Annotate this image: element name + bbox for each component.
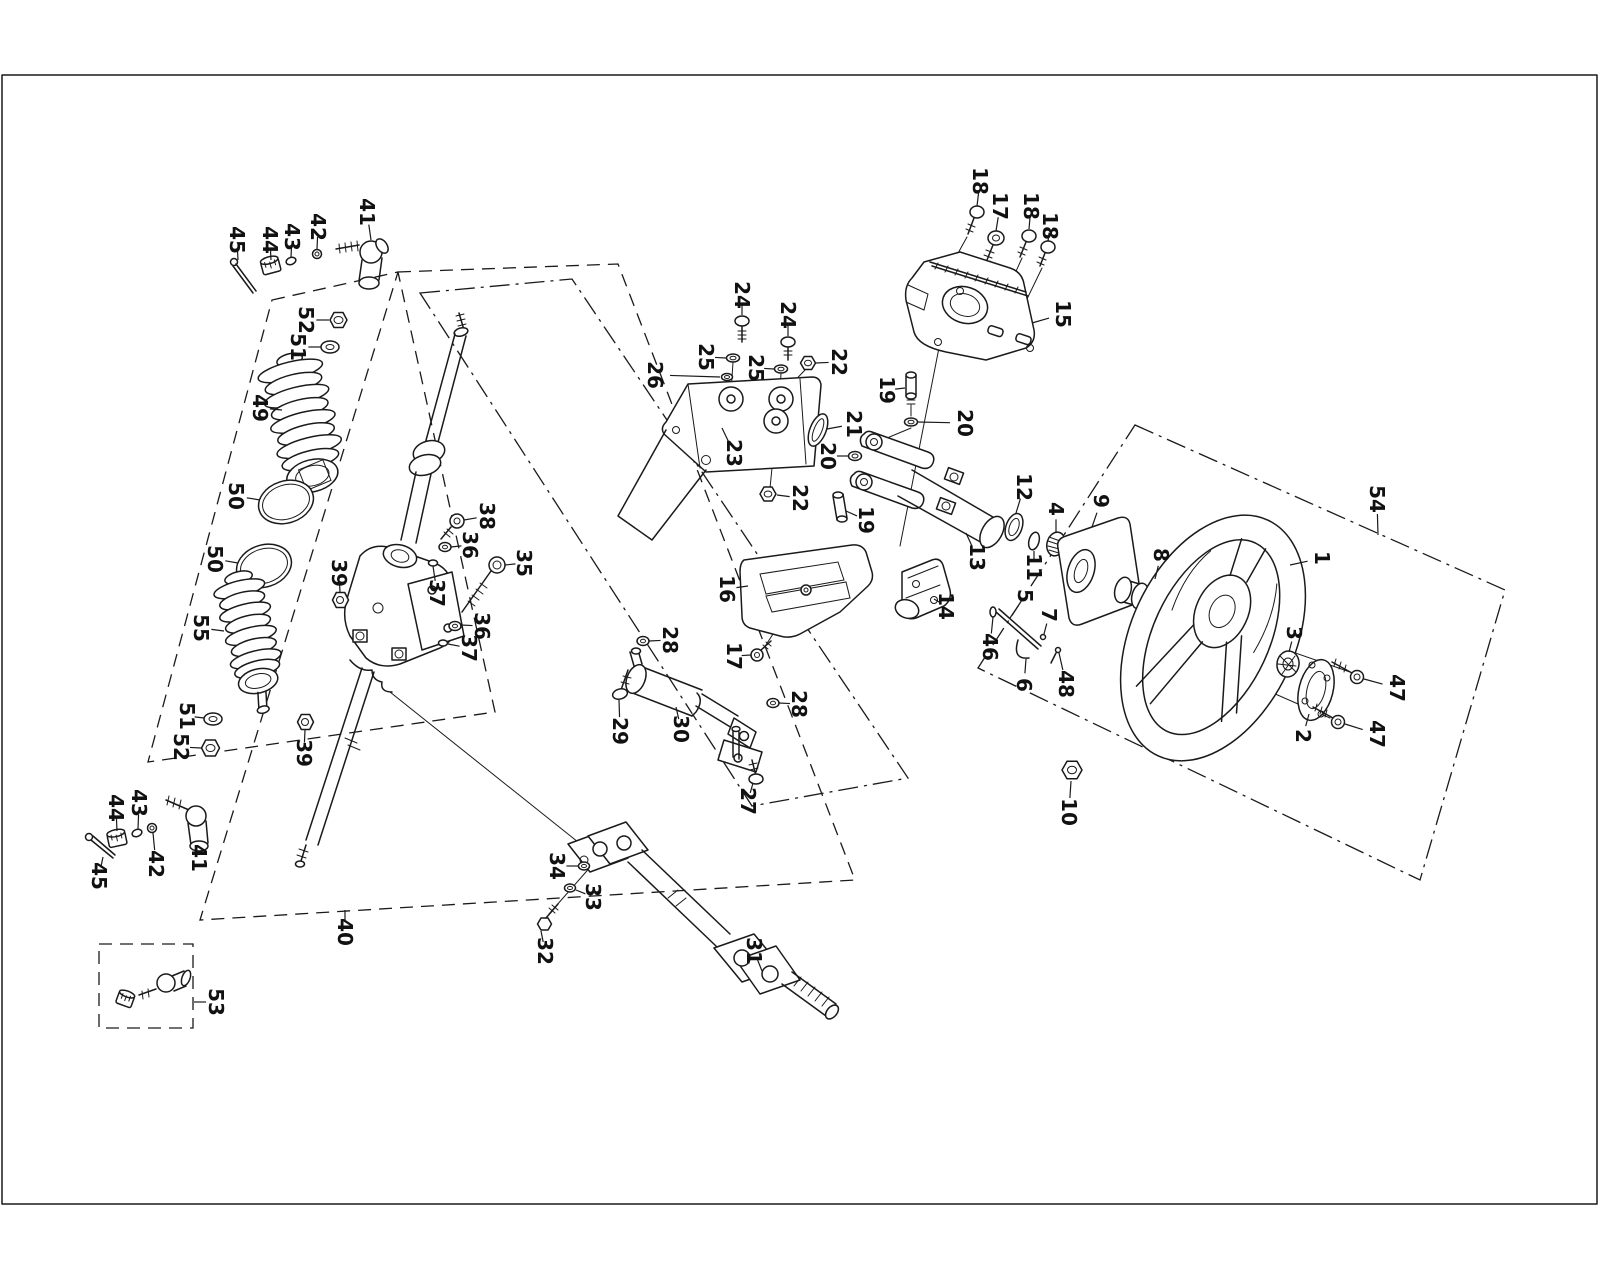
part-label-14: 14 — [934, 592, 958, 620]
guard-plate-16-drawing — [740, 545, 873, 661]
part-label-28: 28 — [787, 690, 811, 718]
part-label-41: 41 — [355, 198, 379, 226]
part-label-53: 53 — [204, 988, 228, 1016]
leader-line-6 — [1025, 659, 1026, 673]
leader-line-41 — [369, 225, 371, 240]
leader-line-5 — [1010, 606, 1018, 618]
rack-jam-nut-washer-lower-drawing — [202, 713, 223, 756]
part-label-36: 36 — [458, 531, 482, 559]
leader-line-38 — [464, 518, 477, 520]
part-label-21: 21 — [842, 410, 866, 438]
part-label-34: 34 — [545, 852, 569, 880]
part-label-47: 47 — [1385, 674, 1409, 702]
leader-line-48 — [1059, 653, 1063, 670]
part-label-4: 4 — [1044, 502, 1068, 516]
leader-line-26 — [670, 375, 720, 377]
part-label-45: 45 — [87, 862, 111, 890]
leader-line-22 — [816, 362, 829, 363]
part-label-2: 2 — [1291, 729, 1315, 743]
part-label-7: 7 — [1037, 608, 1061, 622]
part-label-32: 32 — [533, 937, 557, 965]
part-label-25: 25 — [744, 354, 768, 382]
rack-boot-upper-drawing — [254, 346, 352, 498]
part-label-16: 16 — [715, 575, 739, 603]
part-label-40: 40 — [333, 918, 357, 946]
column-cover-9-drawing — [1058, 517, 1141, 625]
part-label-8: 8 — [1149, 548, 1173, 562]
part-label-55: 55 — [189, 614, 213, 642]
rack-boot-lower-drawing — [209, 566, 295, 718]
part-label-10: 10 — [1057, 798, 1081, 826]
part-label-12: 12 — [1012, 473, 1036, 501]
part-label-51: 51 — [286, 333, 310, 361]
part-label-5: 5 — [1013, 589, 1037, 603]
part-label-18: 18 — [1038, 212, 1062, 240]
part-label-6: 6 — [1012, 678, 1036, 692]
part-label-1: 1 — [1310, 551, 1334, 565]
part-label-20: 20 — [953, 409, 977, 437]
part-label-27: 27 — [736, 787, 760, 815]
part-label-17: 17 — [722, 642, 746, 670]
part-label-42: 42 — [306, 213, 330, 241]
part-label-48: 48 — [1054, 670, 1078, 698]
part-label-15: 15 — [1051, 300, 1075, 328]
leader-line-21 — [827, 426, 842, 429]
part-label-54: 54 — [1365, 485, 1389, 513]
part-label-44: 44 — [104, 794, 128, 822]
leader-line-15 — [1032, 318, 1049, 323]
part-label-39: 39 — [292, 739, 316, 767]
part-label-13: 13 — [965, 543, 989, 571]
part-label-24: 24 — [776, 301, 800, 329]
part-label-46: 46 — [978, 633, 1002, 661]
leader-line-10 — [1070, 781, 1071, 798]
leader-line-7 — [1044, 624, 1047, 634]
part-label-17: 17 — [988, 192, 1012, 220]
part-label-52: 52 — [169, 733, 193, 761]
part-label-45: 45 — [225, 226, 249, 254]
part-label-44: 44 — [258, 226, 282, 254]
part-label-28: 28 — [658, 626, 682, 654]
part-label-37: 37 — [457, 634, 481, 662]
tie-rod-end-upper-drawing — [336, 237, 391, 289]
leader-line-20 — [918, 422, 950, 423]
part-label-22: 22 — [827, 348, 851, 376]
column-bracket-plate-23-drawing — [618, 377, 821, 540]
leader-line-22 — [777, 495, 790, 497]
parts-diagram-page: 1234567891011121314151617171818181919202… — [0, 0, 1600, 1280]
part-label-30: 30 — [669, 715, 693, 743]
part-label-9: 9 — [1089, 494, 1113, 508]
upper-housing-15-drawing — [906, 252, 1035, 360]
part-label-42: 42 — [144, 850, 168, 878]
part-label-50: 50 — [224, 482, 248, 510]
part-label-19: 19 — [875, 376, 899, 404]
u-joint-shaft-31-drawing — [538, 822, 841, 1021]
part-label-31: 31 — [742, 937, 766, 965]
part-label-25: 25 — [694, 343, 718, 371]
part-label-29: 29 — [608, 717, 632, 745]
leader-line-46 — [991, 617, 993, 634]
part-label-3: 3 — [1282, 626, 1306, 640]
part-label-49: 49 — [248, 394, 272, 422]
leader-line-29 — [619, 700, 620, 717]
part-label-39: 39 — [327, 559, 351, 587]
part-label-22: 22 — [788, 484, 812, 512]
part-label-33: 33 — [581, 883, 605, 911]
part-label-38: 38 — [475, 502, 499, 530]
leader-line-47 — [1345, 724, 1363, 730]
leader-line-54 — [1377, 514, 1378, 535]
tie-rod-end-53-drawing — [115, 969, 192, 1008]
part-label-23: 23 — [722, 439, 746, 467]
upper-tie-rod-fasteners-drawing — [231, 250, 322, 294]
part-label-20: 20 — [816, 442, 840, 470]
leader-line-42 — [153, 833, 155, 850]
leader-line-47 — [1364, 679, 1383, 684]
part-label-50: 50 — [203, 545, 227, 573]
part-label-41: 41 — [187, 844, 211, 872]
part-label-51: 51 — [175, 702, 199, 730]
rack-jam-nut-washer-upper-drawing — [321, 313, 347, 354]
part-label-37: 37 — [425, 579, 449, 607]
part-label-11: 11 — [1022, 553, 1046, 581]
part-label-19: 19 — [854, 506, 878, 534]
part-label-52: 52 — [294, 306, 318, 334]
part-label-47: 47 — [1365, 720, 1389, 748]
part-label-18: 18 — [968, 167, 992, 195]
tie-rod-end-box-53 — [99, 944, 193, 1028]
part-label-35: 35 — [512, 549, 536, 577]
part-label-26: 26 — [643, 361, 667, 389]
steering-assembly-exploded-diagram: 1234567891011121314151617171818181919202… — [0, 0, 1600, 1280]
part-label-43: 43 — [280, 223, 304, 251]
part-label-24: 24 — [730, 281, 754, 309]
part-label-43: 43 — [127, 789, 151, 817]
